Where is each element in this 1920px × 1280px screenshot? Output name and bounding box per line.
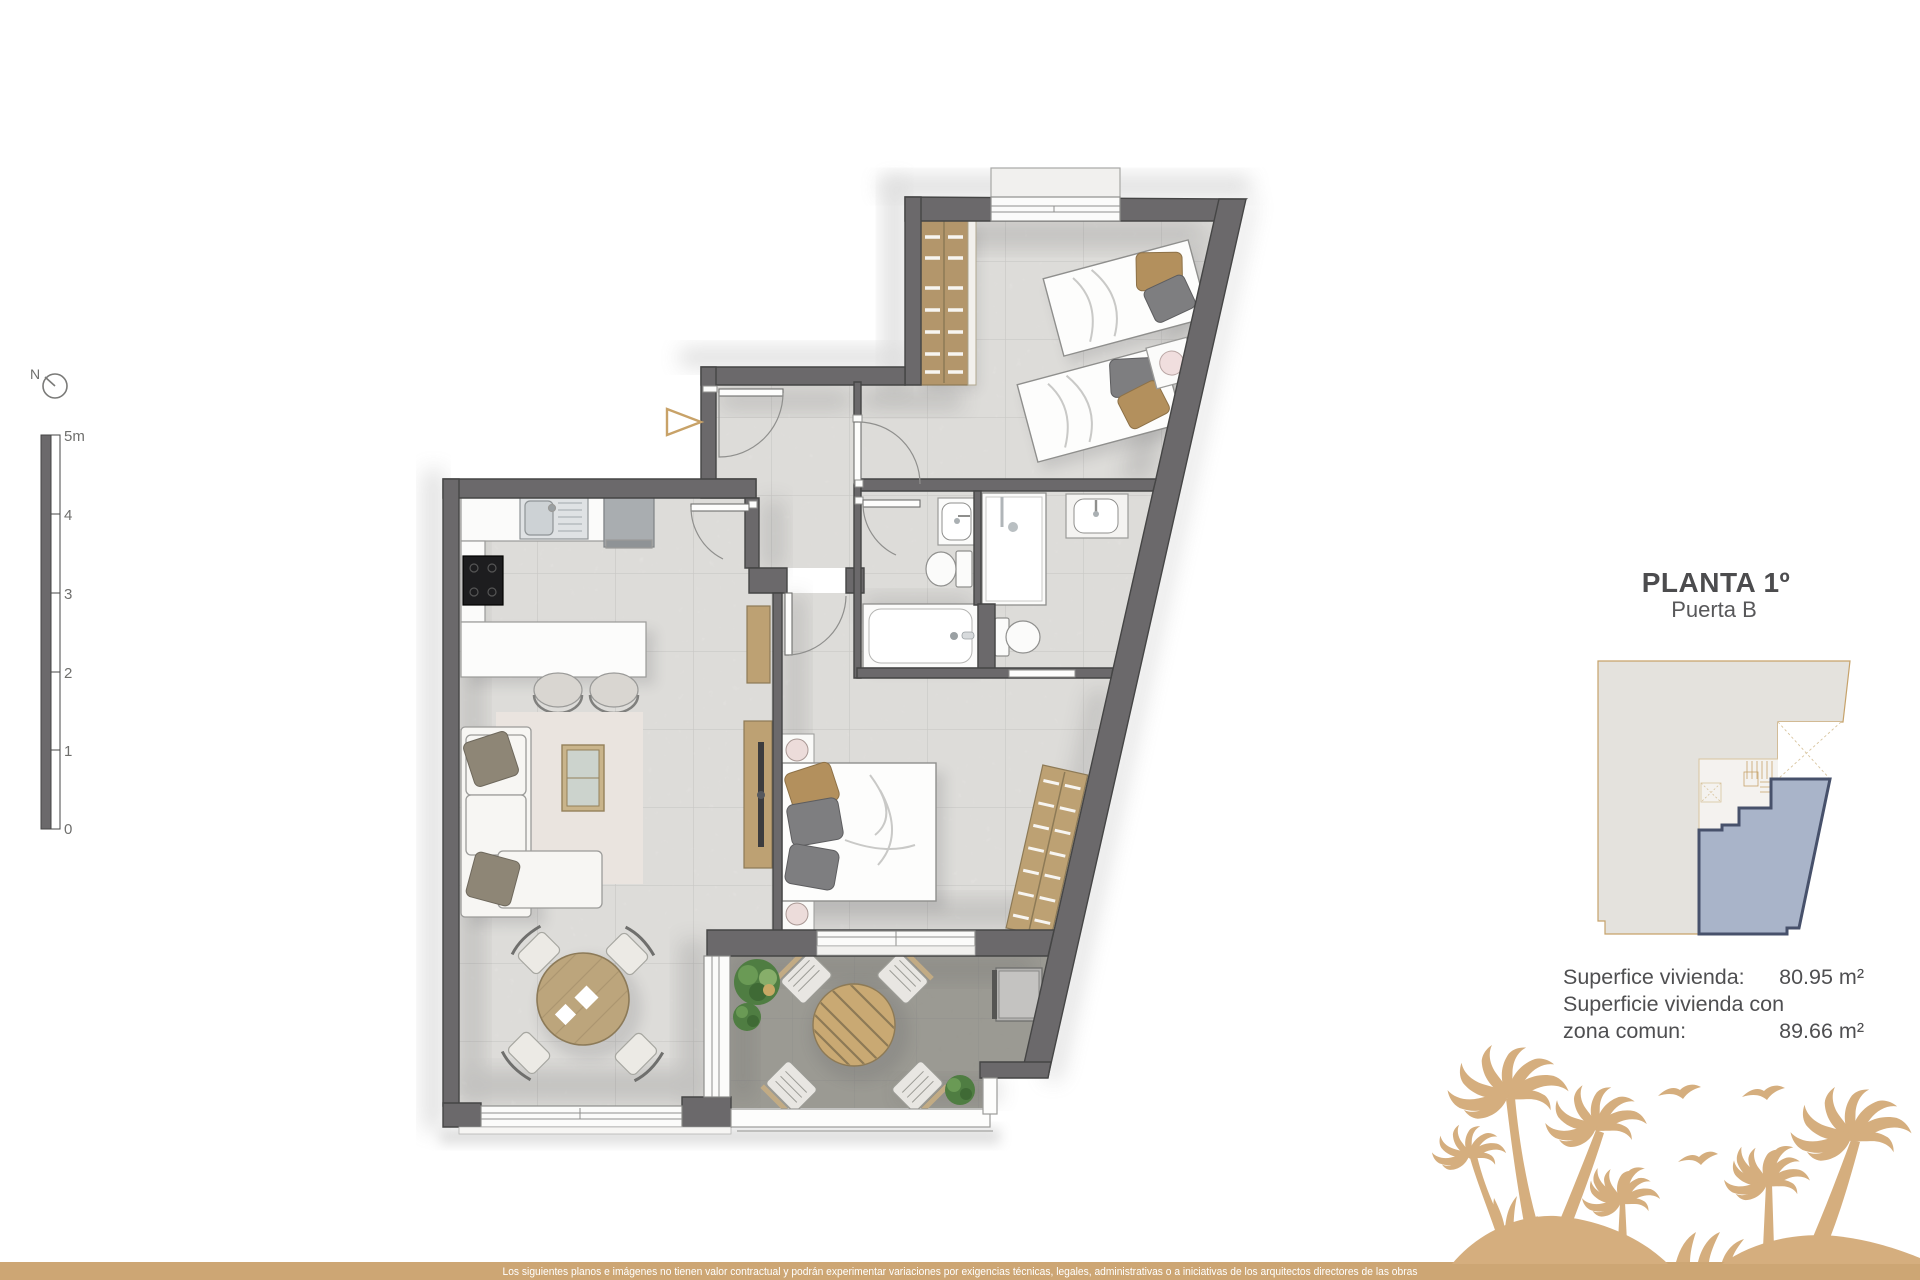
svg-text:89.66 m²: 89.66 m² <box>1779 1019 1864 1043</box>
svg-text:PLANTA 1º: PLANTA 1º <box>1642 567 1791 598</box>
svg-text:0: 0 <box>64 821 72 838</box>
svg-text:80.95 m²: 80.95 m² <box>1779 965 1864 989</box>
svg-text:3: 3 <box>64 586 72 603</box>
svg-text:Puerta B: Puerta B <box>1671 597 1757 622</box>
svg-text:4: 4 <box>64 507 72 524</box>
svg-text:Superficie vivienda con: Superficie vivienda con <box>1563 992 1784 1016</box>
svg-text:Los siguientes planos e imágen: Los siguientes planos e imágenes no tien… <box>503 1266 1418 1278</box>
svg-text:N: N <box>30 366 40 382</box>
svg-text:5m: 5m <box>64 428 85 445</box>
svg-text:zona comun:: zona comun: <box>1563 1019 1686 1043</box>
svg-text:Superfice vivienda:: Superfice vivienda: <box>1563 965 1745 989</box>
svg-text:2: 2 <box>64 665 72 682</box>
svg-text:1: 1 <box>64 743 72 760</box>
